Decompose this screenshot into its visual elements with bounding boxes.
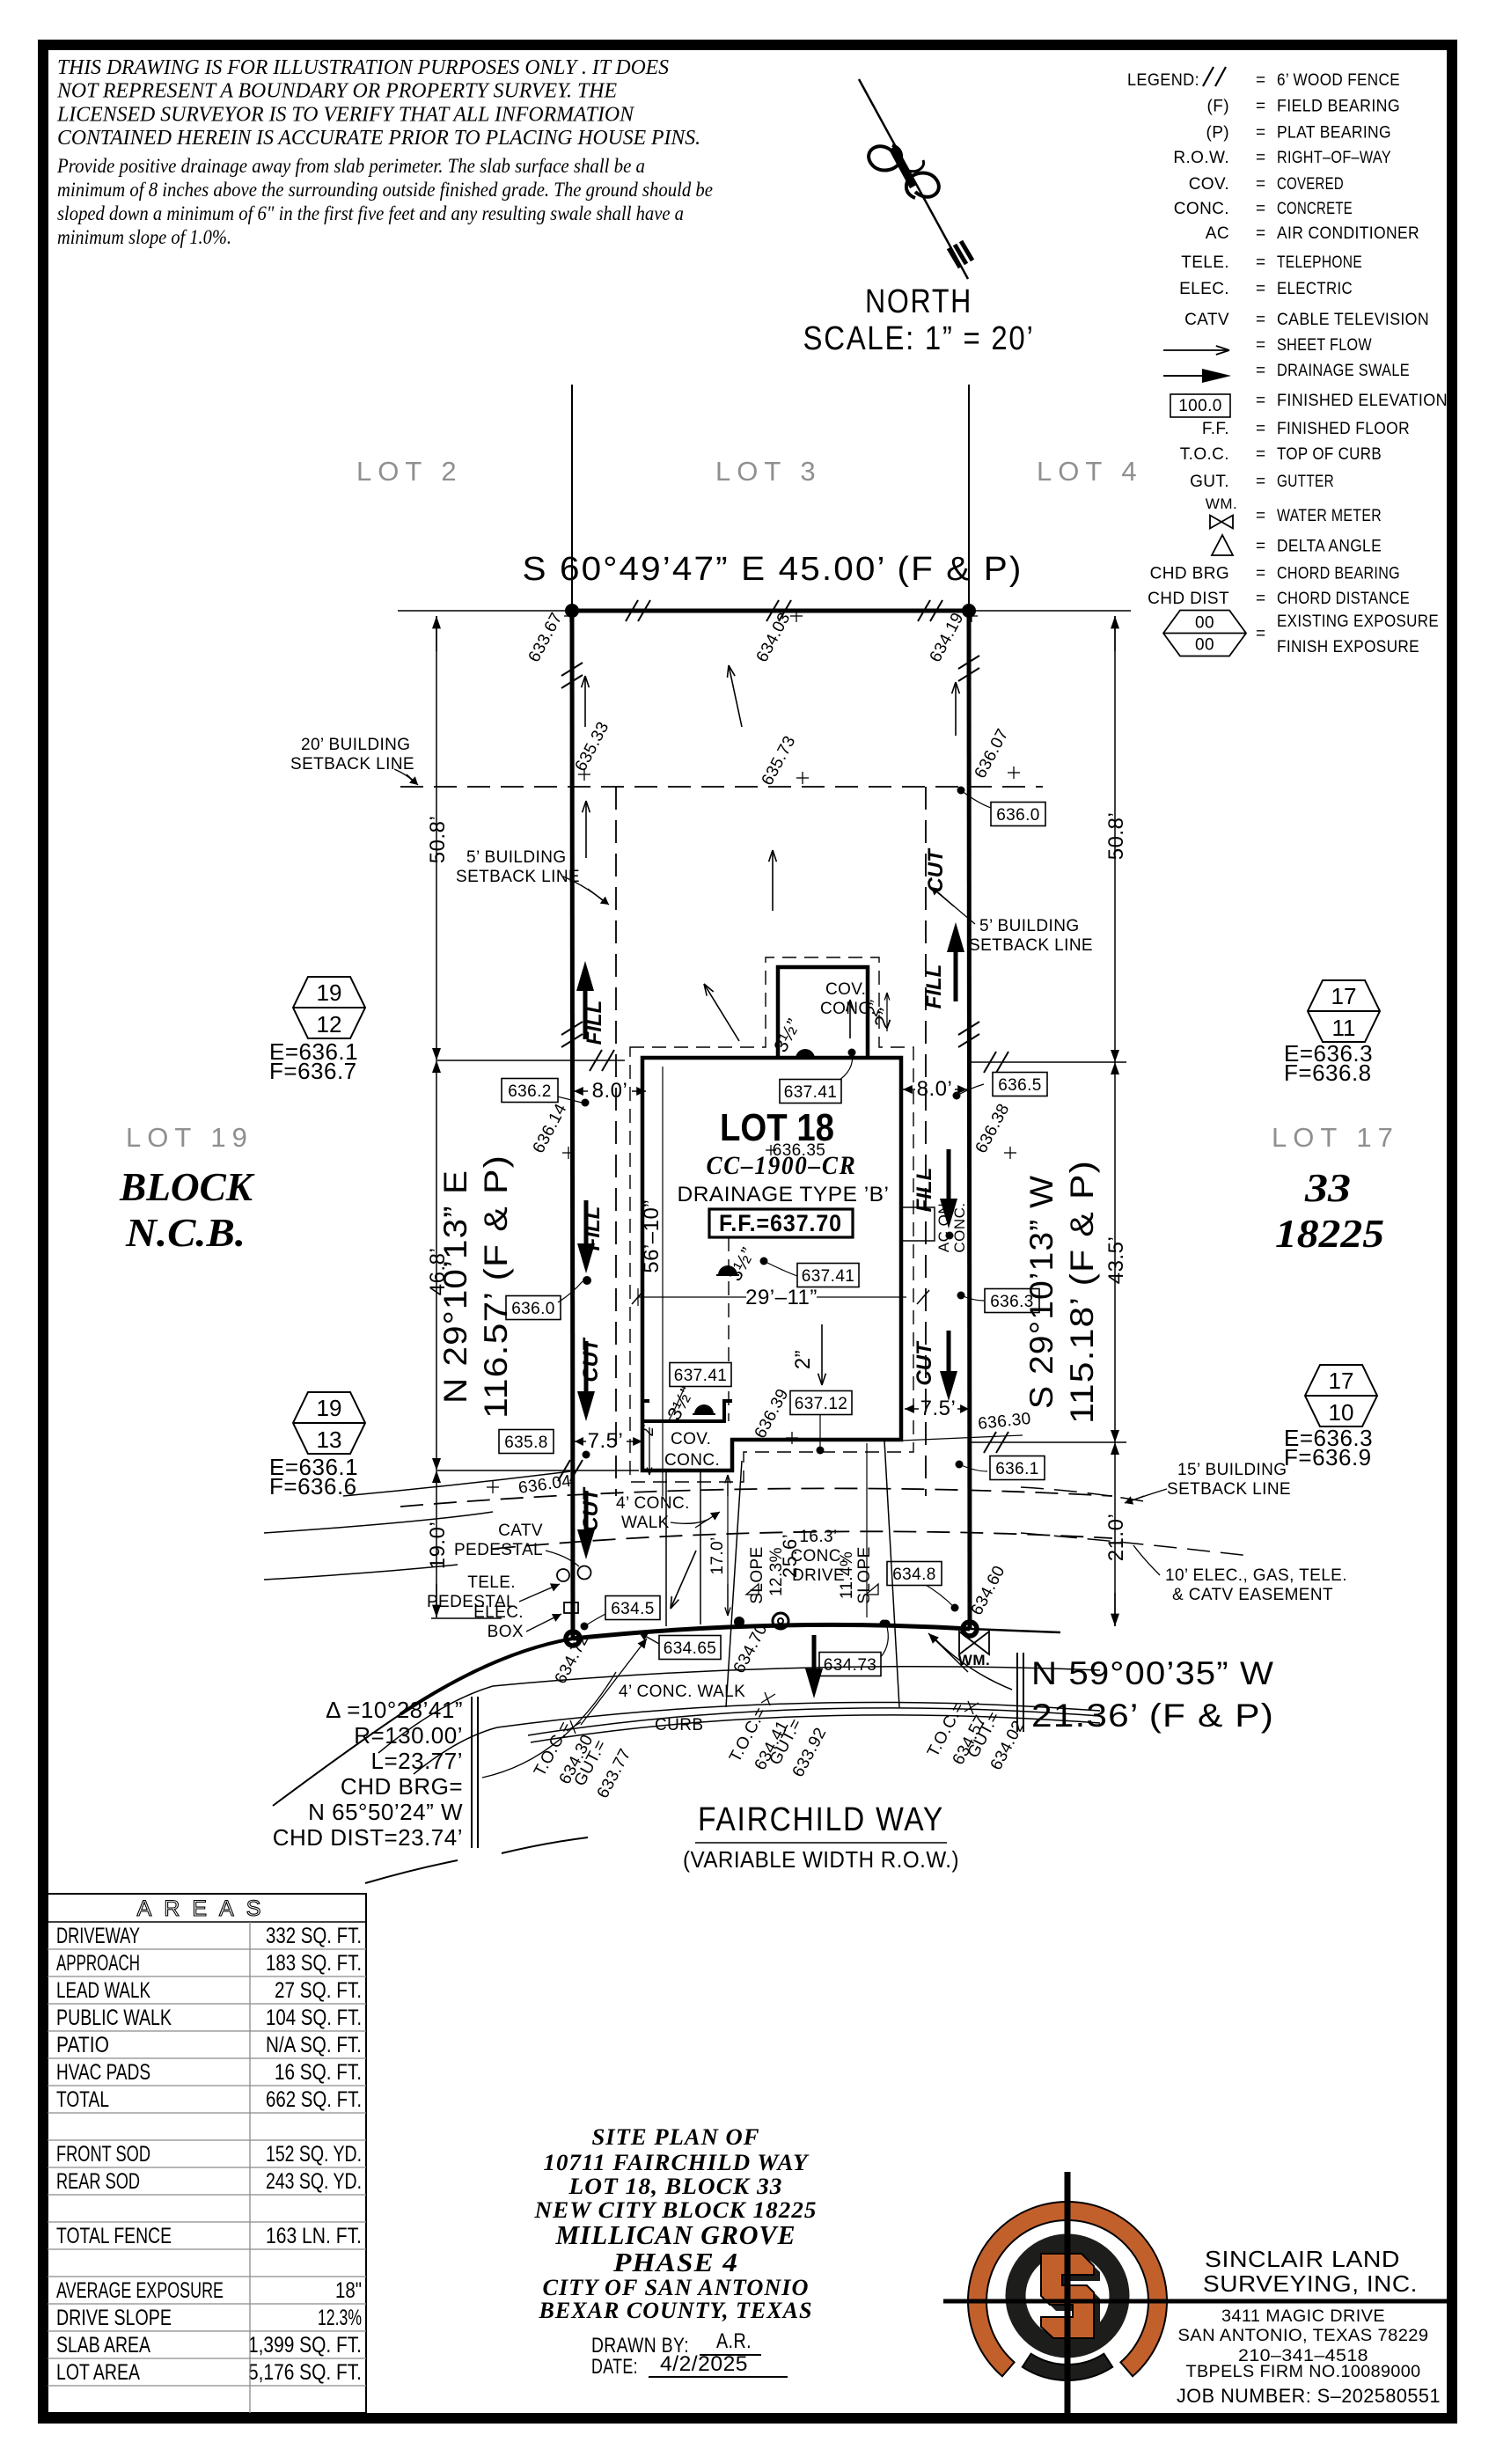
svg-text:DRIVE SLOPE: DRIVE SLOPE [56, 2306, 172, 2330]
svg-text:CUT: CUT [924, 847, 948, 893]
svg-text:163 LN. FT.: 163 LN. FT. [266, 2224, 362, 2248]
svg-text:15’ BUILDING: 15’ BUILDING [1177, 1461, 1287, 1479]
svg-text:662 SQ. FT.: 662 SQ. FT. [266, 2087, 362, 2112]
svg-text:=: = [1256, 224, 1266, 243]
svg-text:243 SQ. YD.: 243 SQ. YD. [266, 2169, 362, 2194]
svg-text:11.4%: 11.4% [838, 1551, 856, 1599]
svg-text:634.73: 634.73 [824, 1656, 877, 1675]
svg-text:00: 00 [1195, 636, 1214, 655]
svg-text:S 29°10’13” W: S 29°10’13” W [1023, 1175, 1060, 1409]
svg-text:637.41: 637.41 [674, 1367, 728, 1385]
svg-text:SLAB AREA: SLAB AREA [56, 2333, 150, 2358]
svg-text:12: 12 [317, 1011, 342, 1038]
svg-text:634.8: 634.8 [892, 1566, 936, 1584]
svg-text:2”: 2” [791, 1350, 815, 1369]
svg-text:SETBACK LINE: SETBACK LINE [456, 868, 580, 886]
svg-text:20’ BUILDING: 20’ BUILDING [301, 736, 410, 754]
svg-text:SLOPE: SLOPE [748, 1546, 766, 1603]
svg-text:Provide positive drainage away: Provide positive drainage away from slab… [56, 155, 645, 178]
svg-text:F.F.=637.70: F.F.=637.70 [719, 1210, 842, 1236]
svg-text:634.65: 634.65 [664, 1639, 717, 1658]
svg-text:SETBACK LINE: SETBACK LINE [969, 936, 1093, 955]
svg-text:F=636.9: F=636.9 [1284, 1444, 1372, 1470]
svg-text:FILL: FILL [581, 1206, 605, 1251]
svg-text:& CATV EASEMENT: & CATV EASEMENT [1172, 1586, 1333, 1604]
svg-text:DRAINAGE TYPE ’B’: DRAINAGE TYPE ’B’ [678, 1183, 890, 1206]
svg-text:REAR SOD: REAR SOD [56, 2169, 140, 2194]
svg-text:43.5’: 43.5’ [1104, 1236, 1128, 1285]
svg-text:18225: 18225 [1275, 1211, 1384, 1256]
svg-text:FILL: FILL [913, 1168, 936, 1213]
svg-text:636.2: 636.2 [508, 1082, 552, 1101]
svg-text:LEAD WALK: LEAD WALK [56, 1978, 150, 2003]
svg-text:4’ CONC.: 4’ CONC. [616, 1494, 690, 1513]
svg-text:=: = [1256, 507, 1266, 525]
svg-text:NOT REPRESENT A BOUNDARY OR PR: NOT REPRESENT A BOUNDARY OR PROPERTY SUR… [56, 80, 617, 103]
svg-text:DELTA ANGLE: DELTA ANGLE [1277, 538, 1382, 556]
svg-text:FIELD BEARING: FIELD BEARING [1277, 98, 1400, 116]
svg-text:TELE.: TELE. [1181, 253, 1229, 272]
svg-text:sloped down a minimum of 6" in: sloped down a minimum of 6" in the first… [57, 202, 684, 225]
svg-text:10: 10 [1329, 1399, 1354, 1426]
svg-text:=: = [1256, 71, 1266, 90]
svg-text:COV.: COV. [1189, 175, 1229, 194]
svg-text:GUTTER: GUTTER [1277, 473, 1334, 491]
svg-text:(P): (P) [1206, 124, 1229, 143]
svg-text:=: = [1256, 625, 1266, 643]
svg-text:LICENSED SURVEYOR IS TO VERIFY: LICENSED SURVEYOR IS TO VERIFY THAT ALL … [56, 103, 635, 126]
svg-text:=: = [1256, 473, 1266, 491]
svg-text:=: = [1256, 200, 1266, 218]
svg-text:LOT 3: LOT 3 [715, 456, 822, 487]
svg-text:=: = [1256, 590, 1266, 608]
svg-text:636.0: 636.0 [996, 806, 1040, 825]
svg-text:CURB: CURB [655, 1716, 703, 1734]
svg-text:AIR CONDITIONER: AIR CONDITIONER [1277, 224, 1419, 243]
svg-text:minimum slope of 1.0%.: minimum slope of 1.0%. [57, 226, 231, 249]
svg-text:=: = [1256, 336, 1266, 355]
svg-text:A.R.: A.R. [716, 2329, 752, 2353]
svg-text:5,176 SQ. FT.: 5,176 SQ. FT. [248, 2360, 362, 2385]
svg-text:637.12: 637.12 [795, 1395, 848, 1413]
svg-text:CHD DIST=23.74’: CHD DIST=23.74’ [273, 1824, 463, 1851]
svg-text:637.41: 637.41 [784, 1083, 838, 1102]
svg-text:LOT 2: LOT 2 [356, 456, 463, 487]
svg-text:TELEPHONE: TELEPHONE [1277, 253, 1362, 272]
svg-text:R=130.00’: R=130.00’ [354, 1722, 463, 1749]
svg-text:CC–1900–CR: CC–1900–CR [707, 1151, 857, 1180]
svg-text:HVAC PADS: HVAC PADS [56, 2060, 150, 2085]
svg-text:636.5: 636.5 [998, 1076, 1042, 1095]
svg-text:PHASE 4: PHASE 4 [612, 2247, 738, 2277]
svg-text:LOT 4: LOT 4 [1037, 456, 1143, 487]
svg-text:=: = [1256, 98, 1266, 116]
svg-text:332 SQ. FT.: 332 SQ. FT. [266, 1924, 362, 1948]
svg-text:TBPELS FIRM NO.10089000: TBPELS FIRM NO.10089000 [1186, 2363, 1421, 2381]
svg-text:CABLE TELEVISION: CABLE TELEVISION [1277, 311, 1429, 329]
svg-text:PUBLIC WALK: PUBLIC WALK [56, 2006, 172, 2030]
svg-text:21.0’: 21.0’ [1104, 1514, 1128, 1562]
svg-text:=: = [1256, 392, 1266, 410]
svg-text:GUT.: GUT. [1190, 473, 1229, 491]
svg-text:27 SQ. FT.: 27 SQ. FT. [275, 1978, 362, 2003]
svg-text:17.0’: 17.0’ [708, 1536, 727, 1574]
svg-text:CHD BRG=: CHD BRG= [341, 1773, 463, 1800]
svg-text:33: 33 [1304, 1165, 1351, 1210]
svg-text:=: = [1256, 420, 1266, 438]
svg-text:APPROACH: APPROACH [56, 1951, 140, 1976]
svg-text:CONC.: CONC. [1174, 200, 1229, 218]
svg-text:TOTAL: TOTAL [56, 2087, 109, 2112]
svg-text:COV.: COV. [825, 980, 866, 999]
svg-text:WM.: WM. [1206, 495, 1237, 512]
svg-text:BEXAR COUNTY, TEXAS: BEXAR COUNTY, TEXAS [538, 2298, 812, 2323]
svg-text:CHD BRG: CHD BRG [1150, 565, 1229, 583]
svg-text:F=636.7: F=636.7 [269, 1058, 357, 1084]
svg-text:634.5: 634.5 [611, 1600, 655, 1618]
svg-text:10’ ELEC., GAS, TELE.: 10’ ELEC., GAS, TELE. [1165, 1566, 1347, 1585]
svg-text:CHD DIST: CHD DIST [1148, 590, 1229, 608]
svg-text:CHORD DISTANCE: CHORD DISTANCE [1277, 590, 1410, 608]
svg-text:WM.: WM. [958, 1652, 990, 1668]
svg-text:F=636.8: F=636.8 [1284, 1060, 1372, 1086]
svg-text:LOT 19: LOT 19 [126, 1122, 253, 1153]
svg-text:L=23.77’: L=23.77’ [371, 1748, 463, 1774]
svg-text:FAIRCHILD WAY: FAIRCHILD WAY [698, 1801, 944, 1838]
svg-text:5’ BUILDING: 5’ BUILDING [466, 848, 567, 867]
svg-text:SINCLAIR LAND: SINCLAIR LAND [1205, 2246, 1400, 2272]
svg-text:7.5’: 7.5’ [920, 1397, 957, 1420]
svg-text:BOX: BOX [488, 1623, 524, 1641]
svg-text:104 SQ. FT.: 104 SQ. FT. [266, 2006, 362, 2030]
svg-text:50.8’: 50.8’ [1104, 812, 1128, 861]
svg-text:=: = [1256, 253, 1266, 272]
svg-text:DATE:: DATE: [591, 2355, 638, 2379]
svg-text:=: = [1256, 124, 1266, 143]
svg-text:SURVEYING, INC.: SURVEYING, INC. [1203, 2270, 1418, 2297]
svg-text:5’ BUILDING: 5’ BUILDING [979, 917, 1080, 935]
svg-text:19: 19 [317, 979, 342, 1006]
svg-text:ELEC.: ELEC. [473, 1603, 524, 1622]
svg-text:17: 17 [1329, 1368, 1354, 1394]
svg-text:minimum of 8 inches above the: minimum of 8 inches above the surroundin… [57, 179, 713, 202]
svg-text:=: = [1256, 538, 1266, 556]
svg-text:F.F.: F.F. [1202, 420, 1229, 438]
svg-text:CUT: CUT [579, 1486, 603, 1532]
svg-text:183 SQ. FT.: 183 SQ. FT. [266, 1951, 362, 1976]
svg-text:SCALE: 1” = 20’: SCALE: 1” = 20’ [803, 320, 1035, 357]
svg-text:Δ =10°28’41”: Δ =10°28’41” [326, 1697, 463, 1723]
svg-text:CONTAINED HEREIN IS ACCURATE P: CONTAINED HEREIN IS ACCURATE PRIOR TO PL… [57, 127, 700, 150]
svg-text:11: 11 [1332, 1015, 1356, 1041]
svg-text:SLOPE: SLOPE [855, 1546, 874, 1603]
svg-text:N 59°00’35” W: N 59°00’35” W [1031, 1655, 1274, 1691]
svg-text:152 SQ. YD.: 152 SQ. YD. [266, 2142, 362, 2167]
svg-text:56’–10”: 56’–10” [640, 1199, 664, 1273]
svg-text:S 60°49’47” E 45.00’ (F & P): S 60°49’47” E 45.00’ (F & P) [523, 551, 1023, 588]
svg-text:FILL: FILL [583, 1001, 606, 1045]
svg-text:FINISHED FLOOR: FINISHED FLOOR [1277, 420, 1410, 438]
svg-text:00: 00 [1195, 614, 1214, 633]
svg-text:10711 FAIRCHILD WAY: 10711 FAIRCHILD WAY [544, 2150, 810, 2175]
svg-text:SETBACK LINE: SETBACK LINE [290, 755, 414, 774]
svg-text:CONCRETE: CONCRETE [1277, 200, 1353, 218]
svg-text:CUT: CUT [913, 1340, 936, 1386]
svg-text:4/2/2025: 4/2/2025 [660, 2352, 748, 2376]
svg-text:637.41: 637.41 [802, 1267, 855, 1286]
svg-text:AREAS: AREAS [137, 1896, 274, 1921]
svg-text:=: = [1256, 311, 1266, 329]
svg-text:19.0’: 19.0’ [426, 1522, 450, 1570]
svg-text:CATV: CATV [498, 1522, 543, 1540]
svg-text:DRIVEWAY: DRIVEWAY [56, 1924, 140, 1948]
svg-text:PATIO: PATIO [56, 2033, 109, 2057]
svg-text:(F): (F) [1207, 98, 1229, 116]
svg-text:13: 13 [317, 1426, 342, 1453]
svg-text:FINISH EXPOSURE: FINISH EXPOSURE [1277, 638, 1419, 656]
svg-text:FRONT SOD: FRONT SOD [56, 2142, 150, 2167]
svg-text:FINISHED ELEVATION: FINISHED ELEVATION [1277, 392, 1448, 410]
svg-text:8.0’: 8.0’ [592, 1079, 628, 1103]
svg-text:CATV: CATV [1184, 311, 1229, 329]
svg-text:NORTH: NORTH [865, 283, 972, 320]
svg-text:PEDESTAL: PEDESTAL [454, 1541, 543, 1559]
svg-text:LOT 17: LOT 17 [1272, 1122, 1399, 1153]
svg-text:N 29°10’13” E: N 29°10’13” E [437, 1170, 473, 1404]
svg-text:=: = [1256, 445, 1266, 464]
svg-text:PLAT BEARING: PLAT BEARING [1277, 124, 1391, 143]
svg-text:AC: AC [1206, 224, 1229, 243]
svg-text:FILL: FILL [922, 964, 946, 1009]
svg-text:JOB NUMBER: S–202580551: JOB NUMBER: S–202580551 [1177, 2385, 1441, 2407]
svg-text:17: 17 [1331, 983, 1357, 1009]
svg-text:16 SQ. FT.: 16 SQ. FT. [275, 2060, 362, 2085]
svg-text:115.18’ (F & P): 115.18’ (F & P) [1064, 1160, 1100, 1424]
svg-text:MILLICAN GROVE: MILLICAN GROVE [555, 2219, 796, 2250]
svg-text:N/A SQ. FT.: N/A SQ. FT. [266, 2033, 362, 2057]
svg-text:TELE.: TELE. [467, 1573, 516, 1592]
svg-text:THIS DRAWING IS FOR ILLUSTRATI: THIS DRAWING IS FOR ILLUSTRATION PURPOSE… [57, 56, 669, 79]
svg-text:29’–11”: 29’–11” [745, 1286, 818, 1309]
svg-text:T.O.C.: T.O.C. [1180, 445, 1229, 464]
svg-text:116.57’ (F & P): 116.57’ (F & P) [478, 1155, 514, 1419]
svg-text:ELEC.: ELEC. [1179, 280, 1229, 298]
svg-text:CUT: CUT [579, 1337, 603, 1382]
svg-text:CONC.: CONC. [664, 1451, 720, 1470]
svg-text:R.O.W.: R.O.W. [1173, 149, 1229, 167]
svg-text:=: = [1256, 565, 1266, 583]
svg-text:21.36’ (F & P): 21.36’ (F & P) [1031, 1698, 1274, 1734]
svg-text:19: 19 [317, 1395, 342, 1421]
svg-text:635.8: 635.8 [504, 1434, 548, 1452]
svg-text:7.5’: 7.5’ [588, 1429, 624, 1453]
svg-text:=: = [1256, 175, 1266, 194]
svg-text:18": 18" [335, 2278, 362, 2303]
svg-text:F=636.6: F=636.6 [269, 1473, 357, 1500]
svg-text:LOT AREA: LOT AREA [56, 2360, 140, 2385]
svg-text:50.8’: 50.8’ [426, 816, 450, 864]
svg-text:2’: 2’ [639, 1423, 657, 1437]
svg-text:N 65°50’24” W: N 65°50’24” W [308, 1799, 463, 1825]
svg-text:LOT 18, BLOCK 33: LOT 18, BLOCK 33 [568, 2174, 782, 2199]
svg-text:N.C.B.: N.C.B. [125, 1210, 246, 1255]
svg-text:SETBACK LINE: SETBACK LINE [1167, 1480, 1291, 1499]
svg-text:LEGEND:: LEGEND: [1127, 71, 1199, 90]
svg-text:6’ WOOD FENCE: 6’ WOOD FENCE [1277, 71, 1400, 90]
svg-text:1,399 SQ. FT.: 1,399 SQ. FT. [248, 2333, 362, 2358]
svg-text:636.1: 636.1 [995, 1460, 1039, 1478]
svg-text:16.3’: 16.3’ [799, 1528, 837, 1546]
svg-text:RIGHT–OF–WAY: RIGHT–OF–WAY [1277, 149, 1391, 167]
svg-text:TOTAL FENCE: TOTAL FENCE [56, 2224, 172, 2248]
svg-text:(VARIABLE WIDTH R.O.W.): (VARIABLE WIDTH R.O.W.) [683, 1846, 959, 1873]
svg-text:ELECTRIC: ELECTRIC [1277, 280, 1353, 298]
svg-text:COVERED: COVERED [1277, 175, 1344, 194]
svg-text:SHEET FLOW: SHEET FLOW [1277, 336, 1372, 355]
svg-text:=: = [1256, 280, 1266, 298]
svg-text:DRAINAGE SWALE: DRAINAGE SWALE [1277, 362, 1410, 380]
svg-text:COV.: COV. [671, 1430, 711, 1448]
svg-text:636.0: 636.0 [511, 1300, 555, 1318]
svg-text:100.0: 100.0 [1178, 397, 1222, 415]
svg-text:SAN ANTONIO, TEXAS 78229: SAN ANTONIO, TEXAS 78229 [1178, 2327, 1429, 2345]
svg-text:WATER METER: WATER METER [1277, 507, 1382, 525]
svg-text:=: = [1256, 362, 1266, 380]
svg-text:SITE PLAN OF: SITE PLAN OF [592, 2124, 760, 2150]
svg-text:CITY OF SAN ANTONIO: CITY OF SAN ANTONIO [543, 2275, 810, 2300]
svg-text:EXISTING EXPOSURE: EXISTING EXPOSURE [1277, 612, 1439, 631]
svg-text:TOP OF CURB: TOP OF CURB [1277, 445, 1382, 464]
svg-text:8.0’: 8.0’ [917, 1077, 953, 1101]
svg-text:12.3%: 12.3% [318, 2306, 362, 2330]
svg-text:WALK: WALK [621, 1514, 670, 1532]
svg-text:=: = [1256, 149, 1266, 167]
svg-text:4’ CONC. WALK: 4’ CONC. WALK [619, 1683, 745, 1701]
svg-text:AVERAGE EXPOSURE: AVERAGE EXPOSURE [56, 2278, 224, 2303]
svg-text:CHORD BEARING: CHORD BEARING [1277, 565, 1400, 583]
svg-text:BLOCK: BLOCK [119, 1164, 255, 1209]
svg-text:3411 MAGIC DRIVE: 3411 MAGIC DRIVE [1221, 2307, 1385, 2326]
